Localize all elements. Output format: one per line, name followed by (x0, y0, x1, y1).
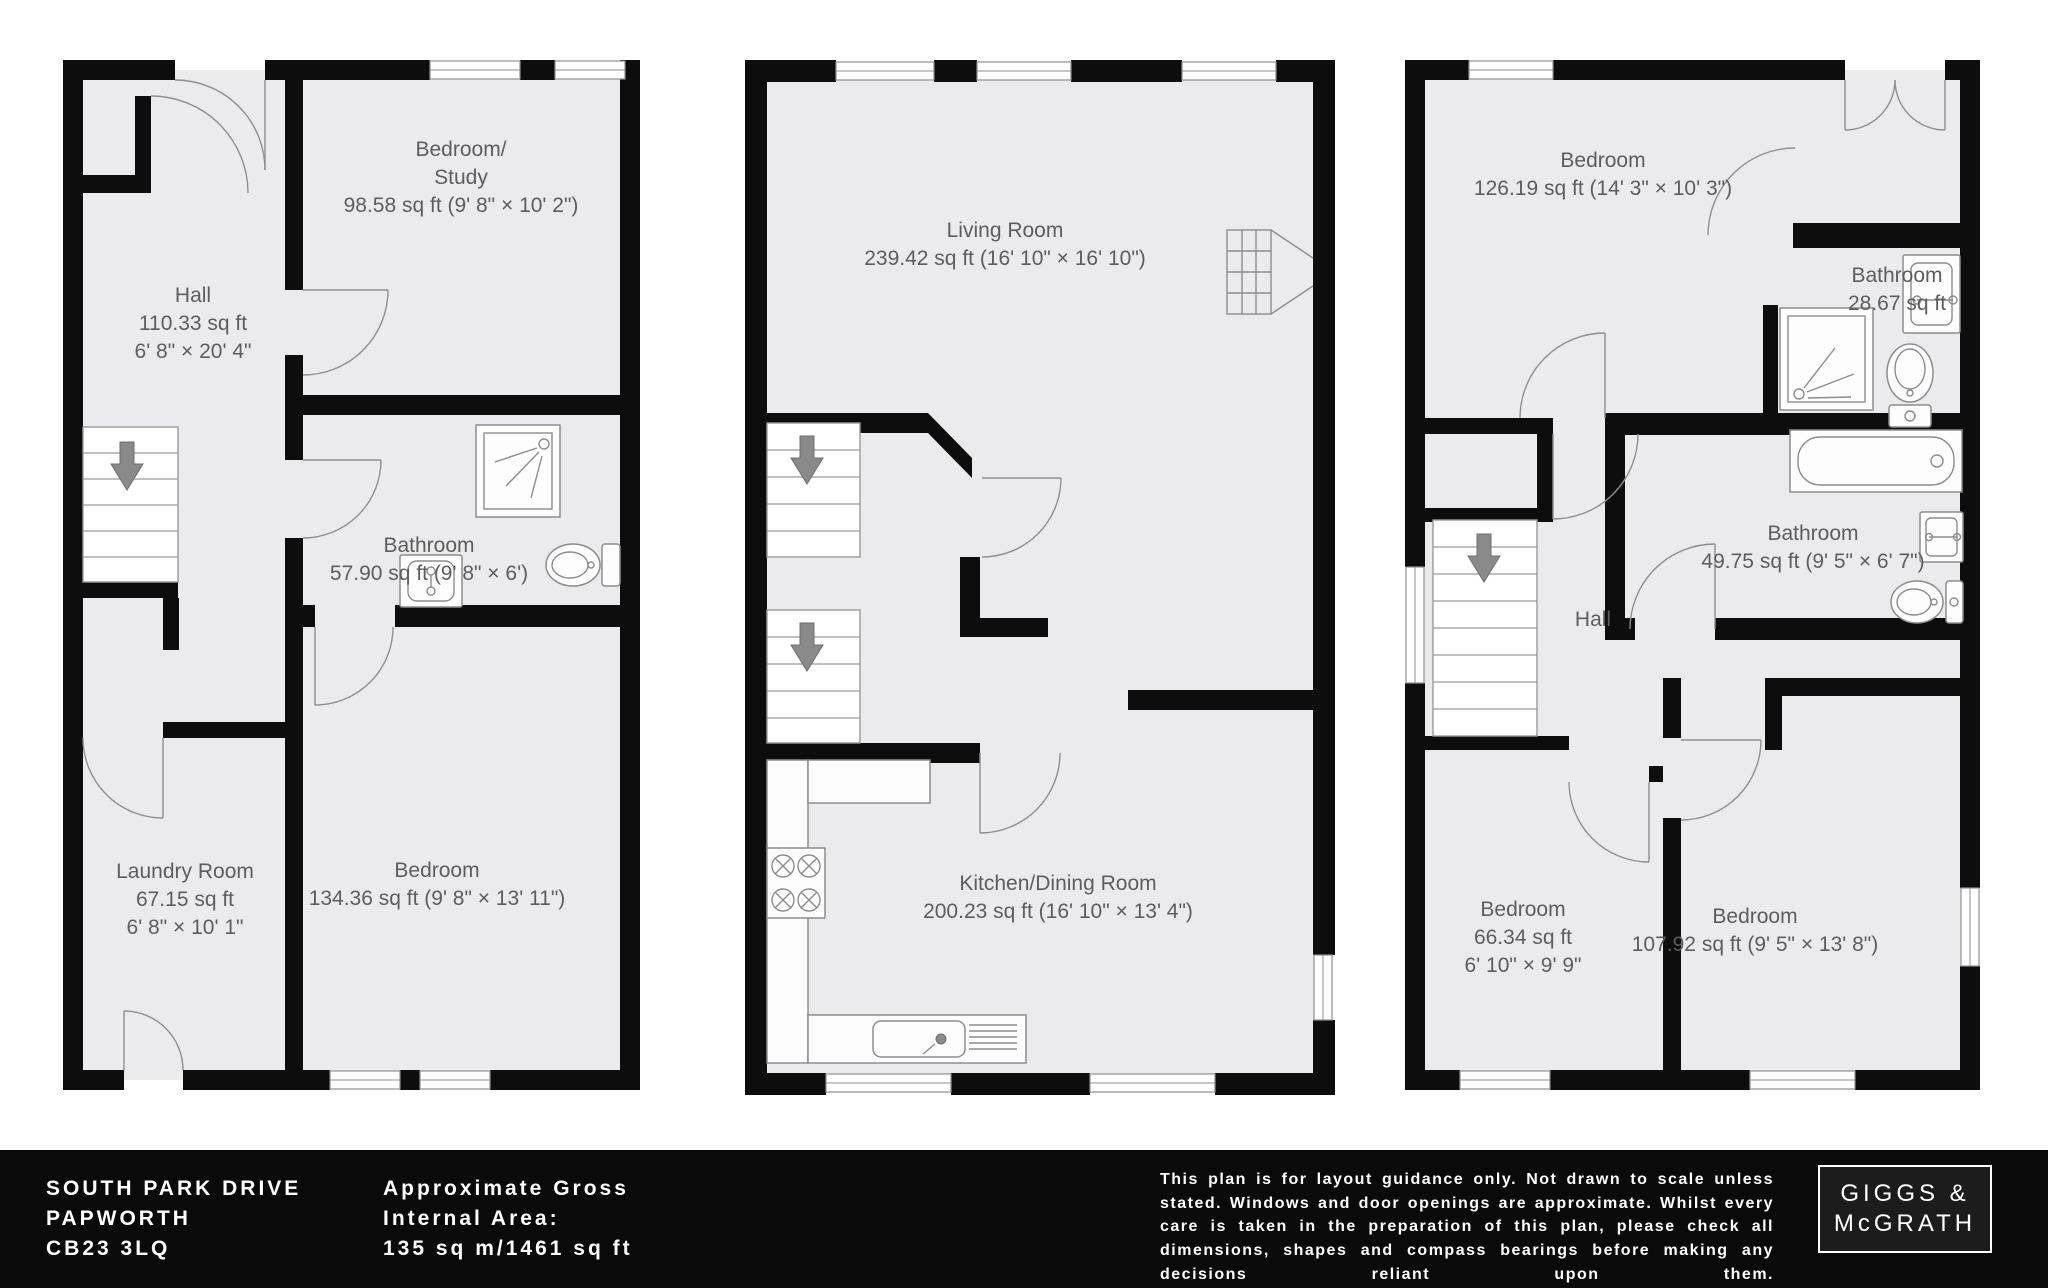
floor-plan-middle-svg (745, 60, 1335, 1095)
room-name: Bathroom (1848, 262, 1946, 290)
room-name: Study (344, 164, 579, 192)
address-line: PAPWORTH (46, 1204, 301, 1234)
shower-icon (476, 425, 560, 517)
window (430, 61, 520, 79)
bath-icon (1790, 430, 1962, 492)
address-line: SOUTH PARK DRIVE (46, 1174, 301, 1204)
window (420, 1071, 490, 1089)
staircase (83, 427, 178, 582)
room-dims: 6' 10" × 9' 9" (1465, 952, 1582, 980)
window (1460, 1071, 1550, 1089)
window (826, 1074, 951, 1092)
room-name: Bedroom (1632, 903, 1879, 931)
area-line: 135 sq m/1461 sq ft (383, 1234, 633, 1264)
floor-plan-right: Bedroom 126.19 sq ft (14' 3" × 10' 3") B… (1405, 60, 1980, 1090)
room-name: Living Room (864, 217, 1146, 245)
room-dims: 6' 8" × 20' 4" (135, 338, 252, 366)
room-area: 107.92 sq ft (9' 5" × 13' 8") (1632, 931, 1879, 959)
window (1090, 1074, 1215, 1092)
staircase (1433, 520, 1537, 736)
room-label-laundry: Laundry Room 67.15 sq ft 6' 8" × 10' 1" (116, 858, 254, 942)
room-name: Bedroom (1474, 147, 1732, 175)
room-label-hall: Hall (1575, 606, 1611, 634)
window (977, 62, 1071, 80)
room-area: 98.58 sq ft (9' 8" × 10' 2") (344, 192, 579, 220)
gross-internal-area: Approximate Gross Internal Area: 135 sq … (383, 1174, 633, 1263)
room-label-bathroom: Bathroom 57.90 sq ft (9' 8" × 6') (330, 532, 528, 588)
room-label-bedroom: Bedroom 126.19 sq ft (14' 3" × 10' 3") (1474, 147, 1732, 203)
staircase-lower (767, 610, 860, 743)
agent-logo: GIGGS & McGRATH (1818, 1165, 1992, 1253)
room-label-bedroom: Bedroom 134.36 sq ft (9' 8" × 13' 11") (309, 857, 566, 913)
sink-icon (1920, 512, 1963, 562)
window (1182, 62, 1276, 80)
room-label-bedroom-right: Bedroom 107.92 sq ft (9' 5" × 13' 8") (1632, 903, 1879, 959)
room-area: 134.36 sq ft (9' 8" × 13' 11") (309, 885, 566, 913)
floor-plan-middle: Living Room 239.42 sq ft (16' 10" × 16' … (745, 60, 1335, 1095)
room-area: 200.23 sq ft (16' 10" × 13' 4") (923, 898, 1193, 926)
toilet-icon (1891, 581, 1963, 623)
room-area: 239.42 sq ft (16' 10" × 16' 10") (864, 245, 1146, 273)
window (1961, 888, 1979, 966)
address-line: CB23 3LQ (46, 1234, 301, 1264)
room-name: Kitchen/Dining Room (923, 870, 1193, 898)
room-area: 67.15 sq ft (116, 886, 254, 914)
footer-bar: SOUTH PARK DRIVE PAPWORTH CB23 3LQ Appro… (0, 1150, 2048, 1288)
window (1406, 567, 1424, 683)
room-area: 57.90 sq ft (9' 8" × 6') (330, 560, 528, 588)
window (330, 1071, 400, 1089)
floor-plan-left: Bedroom/ Study 98.58 sq ft (9' 8" × 10' … (63, 60, 640, 1090)
room-name: Bedroom (309, 857, 566, 885)
window (555, 61, 625, 79)
toilet-icon (1887, 344, 1933, 427)
property-address: SOUTH PARK DRIVE PAPWORTH CB23 3LQ (46, 1174, 301, 1263)
room-label-living-room: Living Room 239.42 sq ft (16' 10" × 16' … (864, 217, 1146, 273)
room-name: Bedroom/ (344, 136, 579, 164)
room-label-kitchen-dining: Kitchen/Dining Room 200.23 sq ft (16' 10… (923, 870, 1193, 926)
room-label-hall: Hall 110.33 sq ft 6' 8" × 20' 4" (135, 282, 252, 366)
room-name: Laundry Room (116, 858, 254, 886)
room-label-bedroom-small: Bedroom 66.34 sq ft 6' 10" × 9' 9" (1465, 896, 1582, 980)
room-name: Bathroom (1701, 520, 1924, 548)
room-name: Hall (135, 282, 252, 310)
toilet-icon (546, 544, 620, 586)
room-area: 126.19 sq ft (14' 3" × 10' 3") (1474, 175, 1732, 203)
window (1750, 1071, 1855, 1089)
room-name: Bedroom (1465, 896, 1582, 924)
window (1314, 955, 1332, 1020)
room-label-bedroom-study: Bedroom/ Study 98.58 sq ft (9' 8" × 10' … (344, 136, 579, 220)
room-area: 49.75 sq ft (9' 5" × 6' 7") (1701, 548, 1924, 576)
agent-logo-line: McGRATH (1834, 1209, 1976, 1239)
shower-icon (1780, 308, 1873, 410)
window (836, 62, 934, 80)
staircase-upper (767, 423, 860, 557)
area-line: Internal Area: (383, 1204, 633, 1234)
room-name: Hall (1575, 606, 1611, 634)
room-label-bathroom: Bathroom 49.75 sq ft (9' 5" × 6' 7") (1701, 520, 1924, 576)
room-area: 110.33 sq ft (135, 310, 252, 338)
room-name: Bathroom (330, 532, 528, 560)
room-area: 28.67 sq ft (1848, 290, 1946, 318)
floorplan-page: Bedroom/ Study 98.58 sq ft (9' 8" × 10' … (0, 0, 2048, 1288)
disclaimer-text: This plan is for layout guidance only. N… (1160, 1168, 1774, 1286)
area-line: Approximate Gross (383, 1174, 633, 1204)
room-area: 66.34 sq ft (1465, 924, 1582, 952)
room-label-bathroom-small: Bathroom 28.67 sq ft (1848, 262, 1946, 318)
room-dims: 6' 8" × 10' 1" (116, 914, 254, 942)
hob-icon (767, 848, 825, 918)
agent-logo-line: GIGGS & (1840, 1179, 1969, 1209)
window (1469, 61, 1553, 79)
